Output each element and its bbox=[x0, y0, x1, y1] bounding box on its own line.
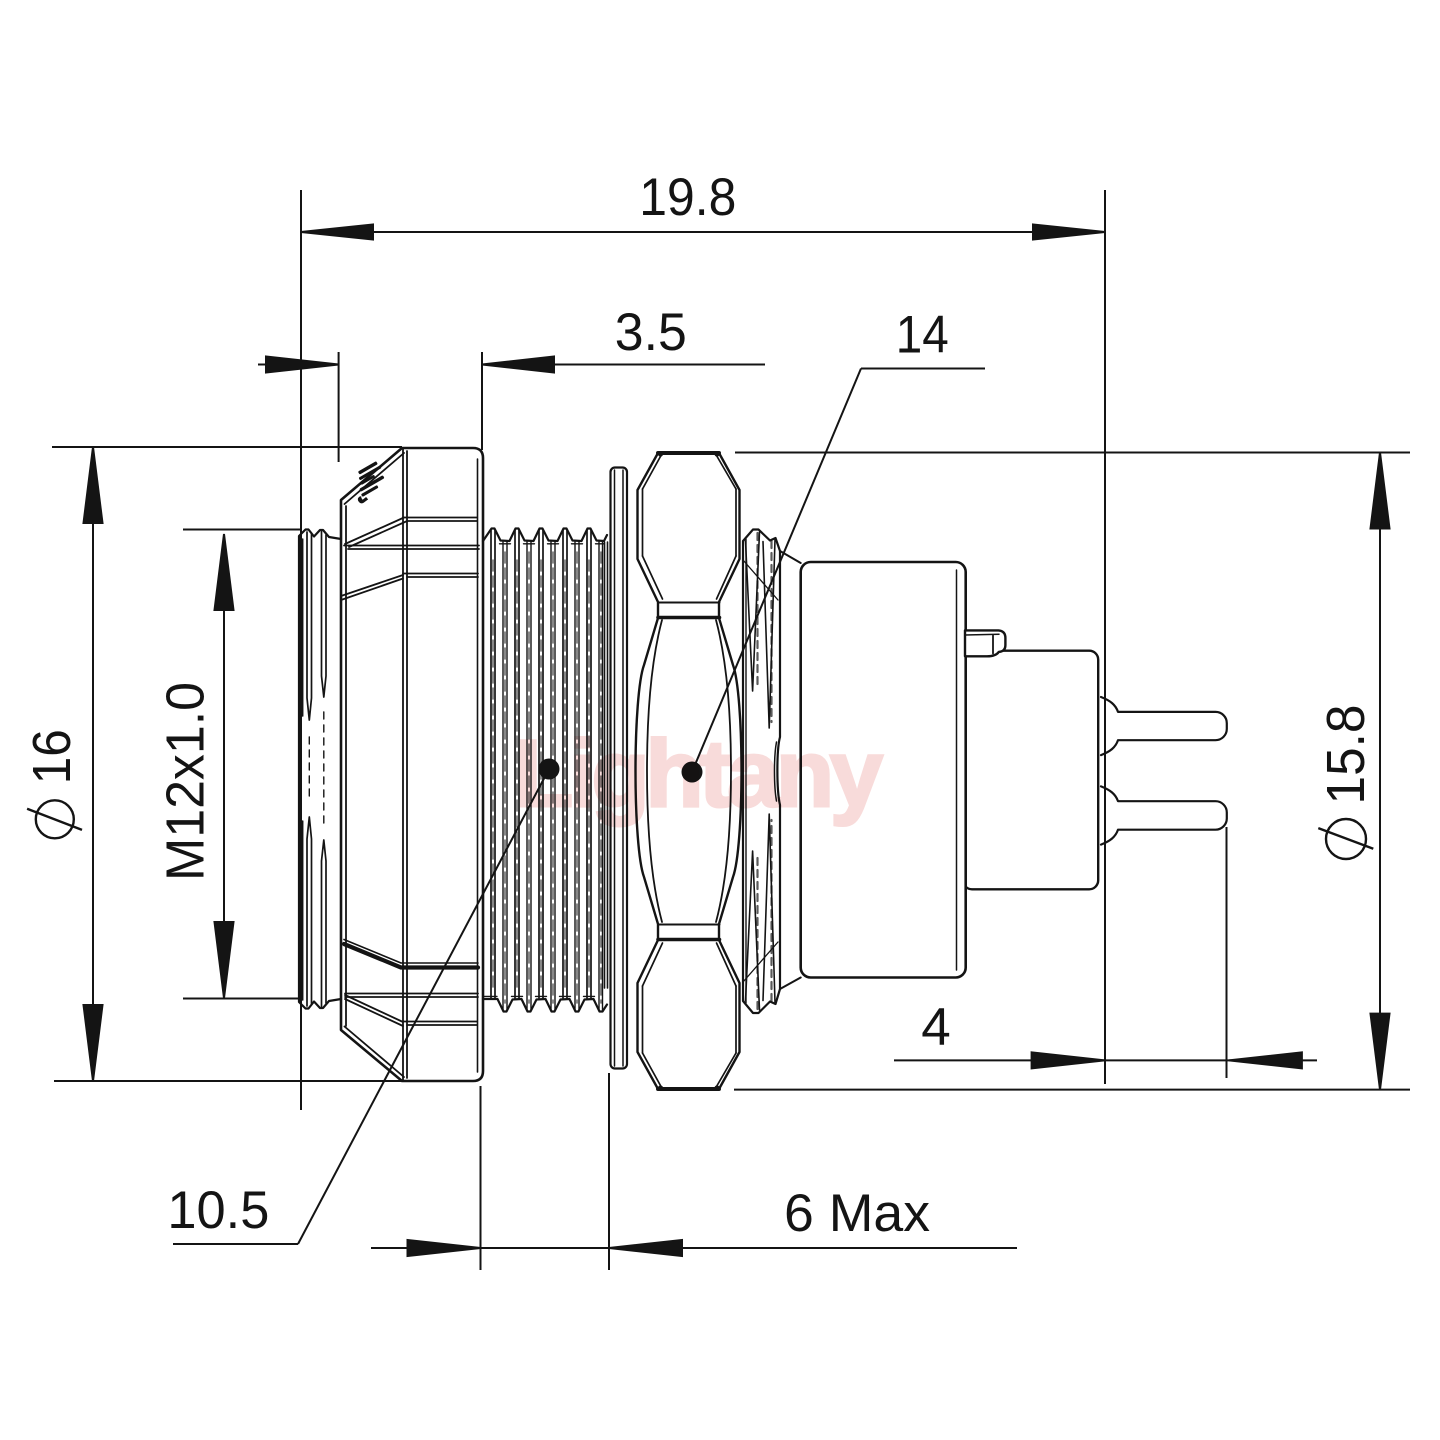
svg-text:M12x1.0: M12x1.0 bbox=[156, 682, 216, 881]
svg-text:6 Max: 6 Max bbox=[784, 1184, 930, 1243]
svg-text:16: 16 bbox=[22, 729, 82, 784]
svg-text:Lightany: Lightany bbox=[515, 721, 883, 827]
svg-text:19.8: 19.8 bbox=[639, 168, 736, 227]
svg-text:15.8: 15.8 bbox=[1316, 705, 1376, 805]
svg-text:3.5: 3.5 bbox=[615, 303, 687, 362]
svg-text:14: 14 bbox=[896, 306, 949, 365]
svg-text:4: 4 bbox=[921, 998, 950, 1057]
svg-text:10.5: 10.5 bbox=[167, 1181, 269, 1240]
